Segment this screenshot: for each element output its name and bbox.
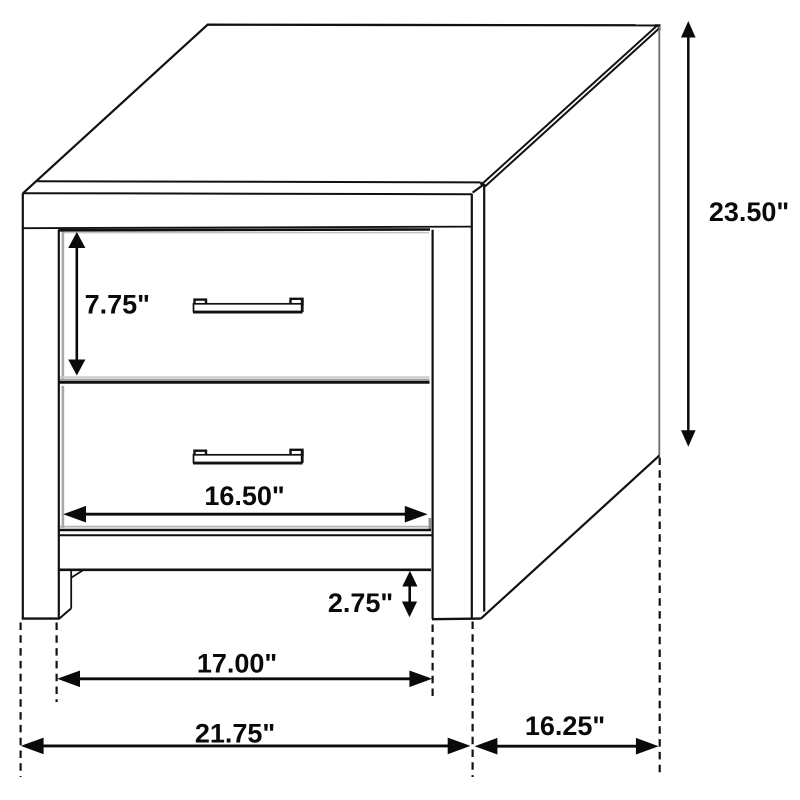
svg-text:7.75": 7.75" — [85, 290, 150, 320]
svg-text:2.75": 2.75" — [328, 588, 393, 618]
svg-text:17.00": 17.00" — [197, 648, 277, 678]
svg-text:16.50": 16.50" — [204, 481, 284, 511]
svg-text:23.50": 23.50" — [709, 197, 789, 227]
svg-text:21.75": 21.75" — [195, 718, 275, 748]
svg-text:16.25": 16.25" — [525, 711, 605, 741]
